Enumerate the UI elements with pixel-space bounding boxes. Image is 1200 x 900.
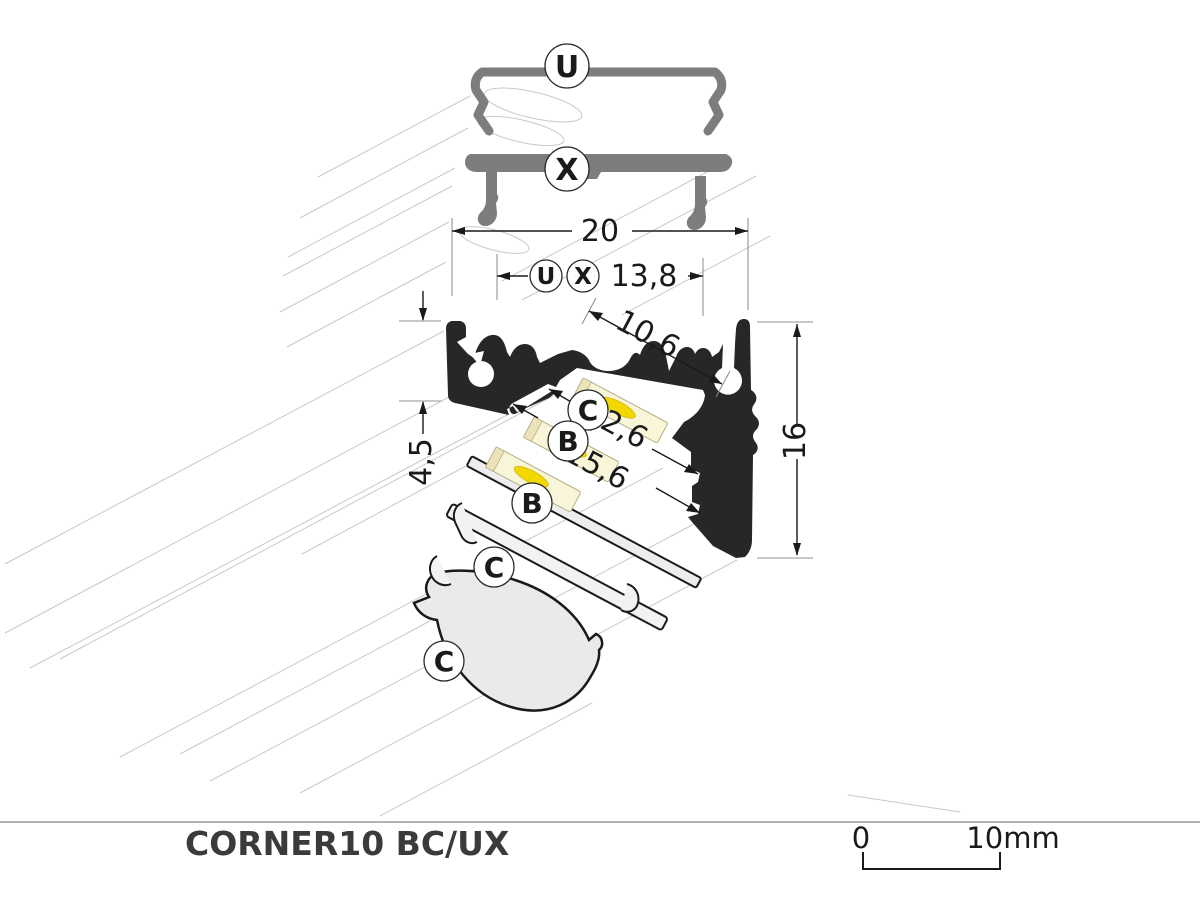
profile-body-shape [446,319,759,558]
cover-x-label: X [555,153,578,188]
cover-c-label: C [434,645,455,678]
perspective-hole-ellipse [457,221,532,259]
dim-flange-depth-value: 4,5 [404,438,439,486]
profile-body [446,319,759,558]
cover-x-leg-left [478,172,499,226]
dim-overall-width-value: 20 [581,214,619,249]
profile-drawing-canvas: U X [0,0,1200,900]
clip-recess-hole [468,361,494,387]
dimension-flange-depth: 4,5 [399,291,441,486]
scale-zero-label: 0 [852,821,870,855]
cover-c-label: C [578,394,599,427]
dimension-back-width: U X 13,8 [497,254,703,316]
cover-u-shape [475,72,722,131]
cover-u-label: U [555,50,579,85]
scale-ten-label: 10mm [966,821,1059,855]
product-title: CORNER10 BC/UX [185,824,509,863]
dimension-height: 16 [757,322,813,558]
cover-x-leg-right [687,176,708,230]
dimension-overall-width: 20 [452,214,748,310]
cover-x-label-small: X [574,264,592,290]
scale-bar: 0 10mm [852,821,1060,869]
dim-height-value: 16 [778,422,813,460]
extrusion-guide-lines [5,81,960,816]
cover-c-label: C [484,551,505,584]
dim-back-width-value: 13,8 [611,259,678,294]
cover-u-label-small: U [537,264,556,290]
technical-drawing-page: U X [0,0,1200,900]
footer: CORNER10 BC/UX 0 10mm [0,821,1200,869]
cover-b-label: B [557,425,578,458]
cover-x-bar [465,154,732,179]
cover-b-label: B [521,487,542,520]
